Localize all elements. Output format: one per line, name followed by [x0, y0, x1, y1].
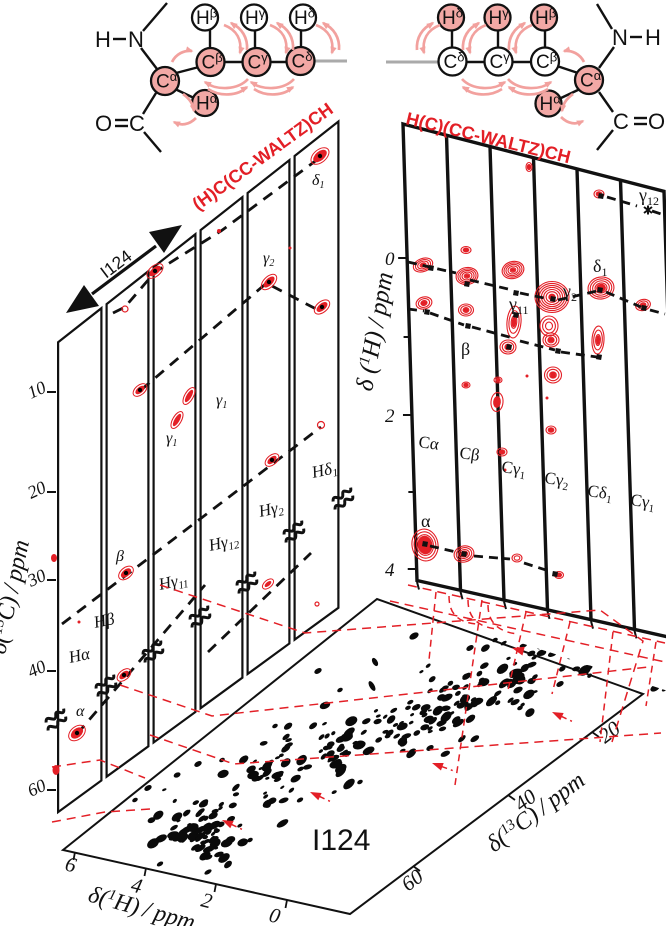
svg-text:N: N — [612, 25, 628, 50]
svg-text:α: α — [76, 703, 85, 720]
svg-text:I124: I124 — [312, 824, 370, 857]
svg-text:β: β — [115, 548, 124, 565]
svg-text:O: O — [95, 111, 112, 136]
svg-text:C: C — [129, 111, 145, 136]
svg-text:4: 4 — [385, 560, 395, 581]
svg-text:α: α — [421, 511, 431, 531]
svg-text:Cα: Cα — [417, 432, 440, 454]
svg-text:H: H — [95, 27, 111, 52]
svg-text:2: 2 — [385, 406, 395, 427]
svg-text:O: O — [648, 109, 665, 134]
svg-text:C: C — [613, 109, 629, 134]
svg-text:H: H — [645, 25, 661, 50]
svg-text:Cβ: Cβ — [458, 443, 480, 465]
svg-text:β: β — [461, 339, 470, 359]
svg-text:0: 0 — [385, 249, 395, 270]
svg-text:N: N — [128, 27, 144, 52]
